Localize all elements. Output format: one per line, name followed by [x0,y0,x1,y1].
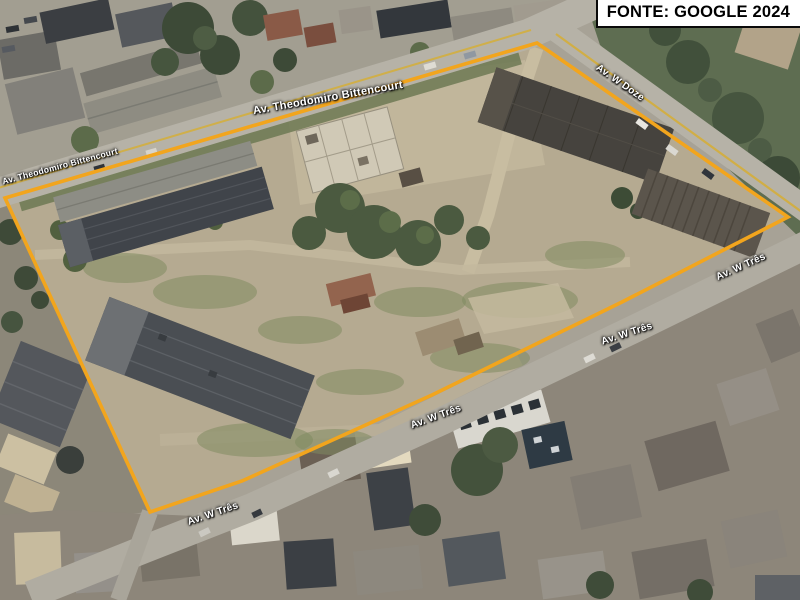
satellite-scene [0,0,800,600]
source-badge: FONTE: GOOGLE 2024 [596,0,800,28]
aerial-figure: Av. Theodomiro Bittencourt Av. Theodomir… [0,0,800,600]
